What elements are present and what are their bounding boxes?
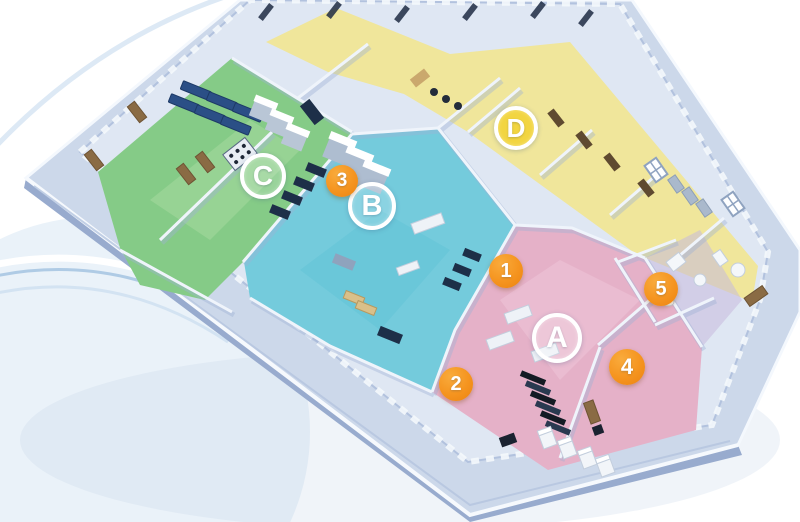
marker-number-4[interactable]: 4 [609,349,645,385]
marker-label: 2 [450,373,461,396]
marker-number-3[interactable]: 3 [326,165,358,197]
marker-label: 5 [655,278,666,301]
floorplan-scene: ABCD12345 [0,0,800,522]
marker-label: B [362,190,383,223]
marker-label: 1 [500,260,511,283]
marker-letter-C[interactable]: C [240,153,286,199]
marker-layer: ABCD12345 [0,0,800,522]
marker-number-2[interactable]: 2 [439,367,473,401]
marker-label: D [507,113,526,144]
marker-number-1[interactable]: 1 [489,254,523,288]
marker-label: 3 [337,170,348,192]
marker-label: C [253,160,273,192]
marker-label: 4 [621,354,633,380]
marker-letter-D[interactable]: D [494,106,538,150]
marker-label: A [546,321,568,355]
marker-letter-A[interactable]: A [532,313,582,363]
marker-number-5[interactable]: 5 [644,272,678,306]
